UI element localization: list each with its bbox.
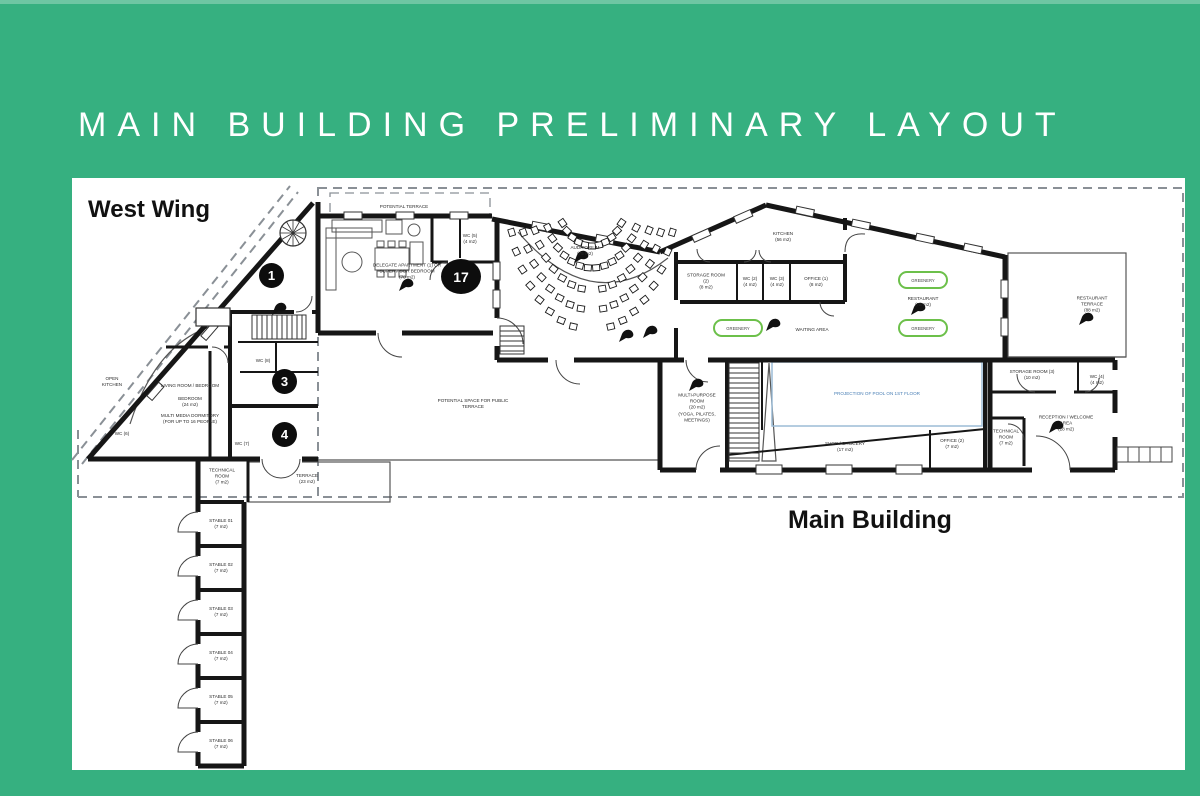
marker-3: 3 bbox=[272, 369, 297, 394]
greenery-badge: GREENERY bbox=[898, 271, 948, 289]
auditorium-seats bbox=[508, 218, 676, 330]
room-label-kitchen: KITCHEN(56 m2) bbox=[773, 231, 793, 243]
marker-1: 1 bbox=[259, 263, 284, 288]
room-label-reception: RECEPTION / WELCOME AREA(28 m2) bbox=[1038, 415, 1094, 434]
room-label-restaurant-terrace: RESTAURANT TERRACE(88 m2) bbox=[1068, 296, 1116, 315]
room-label-wc8: WC (8) bbox=[256, 358, 271, 364]
room-label-office1: OFFICE (1)(8 m2) bbox=[804, 276, 828, 288]
terrace-entry-steps bbox=[1117, 447, 1172, 462]
room-label-terrace-west: TERRACE(23 m2) bbox=[296, 473, 318, 485]
room-label-auditorium: AUDITORIUM(75 m2) bbox=[570, 245, 599, 257]
greenery-badge: GREENERY bbox=[898, 319, 948, 337]
staircases bbox=[252, 315, 759, 461]
room-label-pool: PROJECTION OF POOL ON 1ST FLOOR bbox=[834, 391, 920, 397]
room-label-dormitory: MULTI MEDIA DORMITORY(FOR UP TO 16 PEOPL… bbox=[161, 413, 219, 425]
room-label-technical1: TECHNICAL ROOM(7 m2) bbox=[204, 468, 240, 487]
greenery-badge: GREENERY bbox=[713, 319, 763, 337]
stable-label: STABLE 04(7 m2) bbox=[209, 650, 233, 662]
door-arcs bbox=[212, 234, 1099, 478]
room-label-wc3: WC (3)(4 m2) bbox=[770, 276, 785, 288]
room-label-potential-terrace: POTENTIAL TERRACE bbox=[380, 204, 429, 210]
room-label-wc6: WC (6) bbox=[115, 431, 130, 437]
room-label-bedroom: BEDROOM(24 m2) bbox=[178, 396, 202, 408]
stable-label: STABLE 03(7 m2) bbox=[209, 606, 233, 618]
room-label-public-terrace: POTENTIAL SPACE FOR PUBLIC TERRACE bbox=[427, 398, 519, 410]
room-label-wc2: WC (2)(4 m2) bbox=[743, 276, 758, 288]
room-label-restaurant: RESTAURANT(78 m2) bbox=[908, 296, 939, 308]
room-label-waiting: WAITING AREA bbox=[795, 327, 828, 333]
room-label-open-kitchen: OPEN KITCHEN bbox=[97, 376, 127, 388]
west-wing-label: West Wing bbox=[88, 196, 210, 224]
room-label-wc4: WC (4)(4 m2) bbox=[1090, 374, 1105, 386]
marker-4: 4 bbox=[272, 422, 297, 447]
room-label-wc5: WC (5)(4 m2) bbox=[463, 233, 478, 245]
room-label-storage3: STORAGE ROOM (3)(10 m2) bbox=[1010, 369, 1055, 381]
room-label-storage2: STORAGE ROOM (2)(8 m2) bbox=[685, 273, 727, 292]
room-label-wc7: WC (7) bbox=[235, 441, 250, 447]
room-label-shop: SHOP / GROCERY(17 m2) bbox=[825, 441, 865, 453]
marker-17: 17 bbox=[441, 259, 481, 294]
room-label-living: LIVING ROOM / BEDROOM bbox=[161, 383, 219, 389]
room-label-office2: OFFICE (2)(7 m2) bbox=[940, 438, 964, 450]
stable-label: STABLE 06(7 m2) bbox=[209, 738, 233, 750]
room-label-technical2: TECHNICAL ROOM(7 m2) bbox=[991, 429, 1021, 448]
stable-label: STABLE 05(7 m2) bbox=[209, 694, 233, 706]
spiral-stair bbox=[280, 220, 306, 246]
room-label-multipurpose: MULTI-PURPOSE ROOM(20 m2)(YOGA, PILATES,… bbox=[671, 393, 723, 424]
stable-label: STABLE 01(7 m2) bbox=[209, 518, 233, 530]
window-strips bbox=[756, 465, 922, 474]
main-building-label: Main Building bbox=[788, 506, 952, 535]
room-label-apartment: DELEGATE APARTMENT (1) OR SUPERVISOR BED… bbox=[369, 263, 445, 282]
stable-label: STABLE 02(7 m2) bbox=[209, 562, 233, 574]
